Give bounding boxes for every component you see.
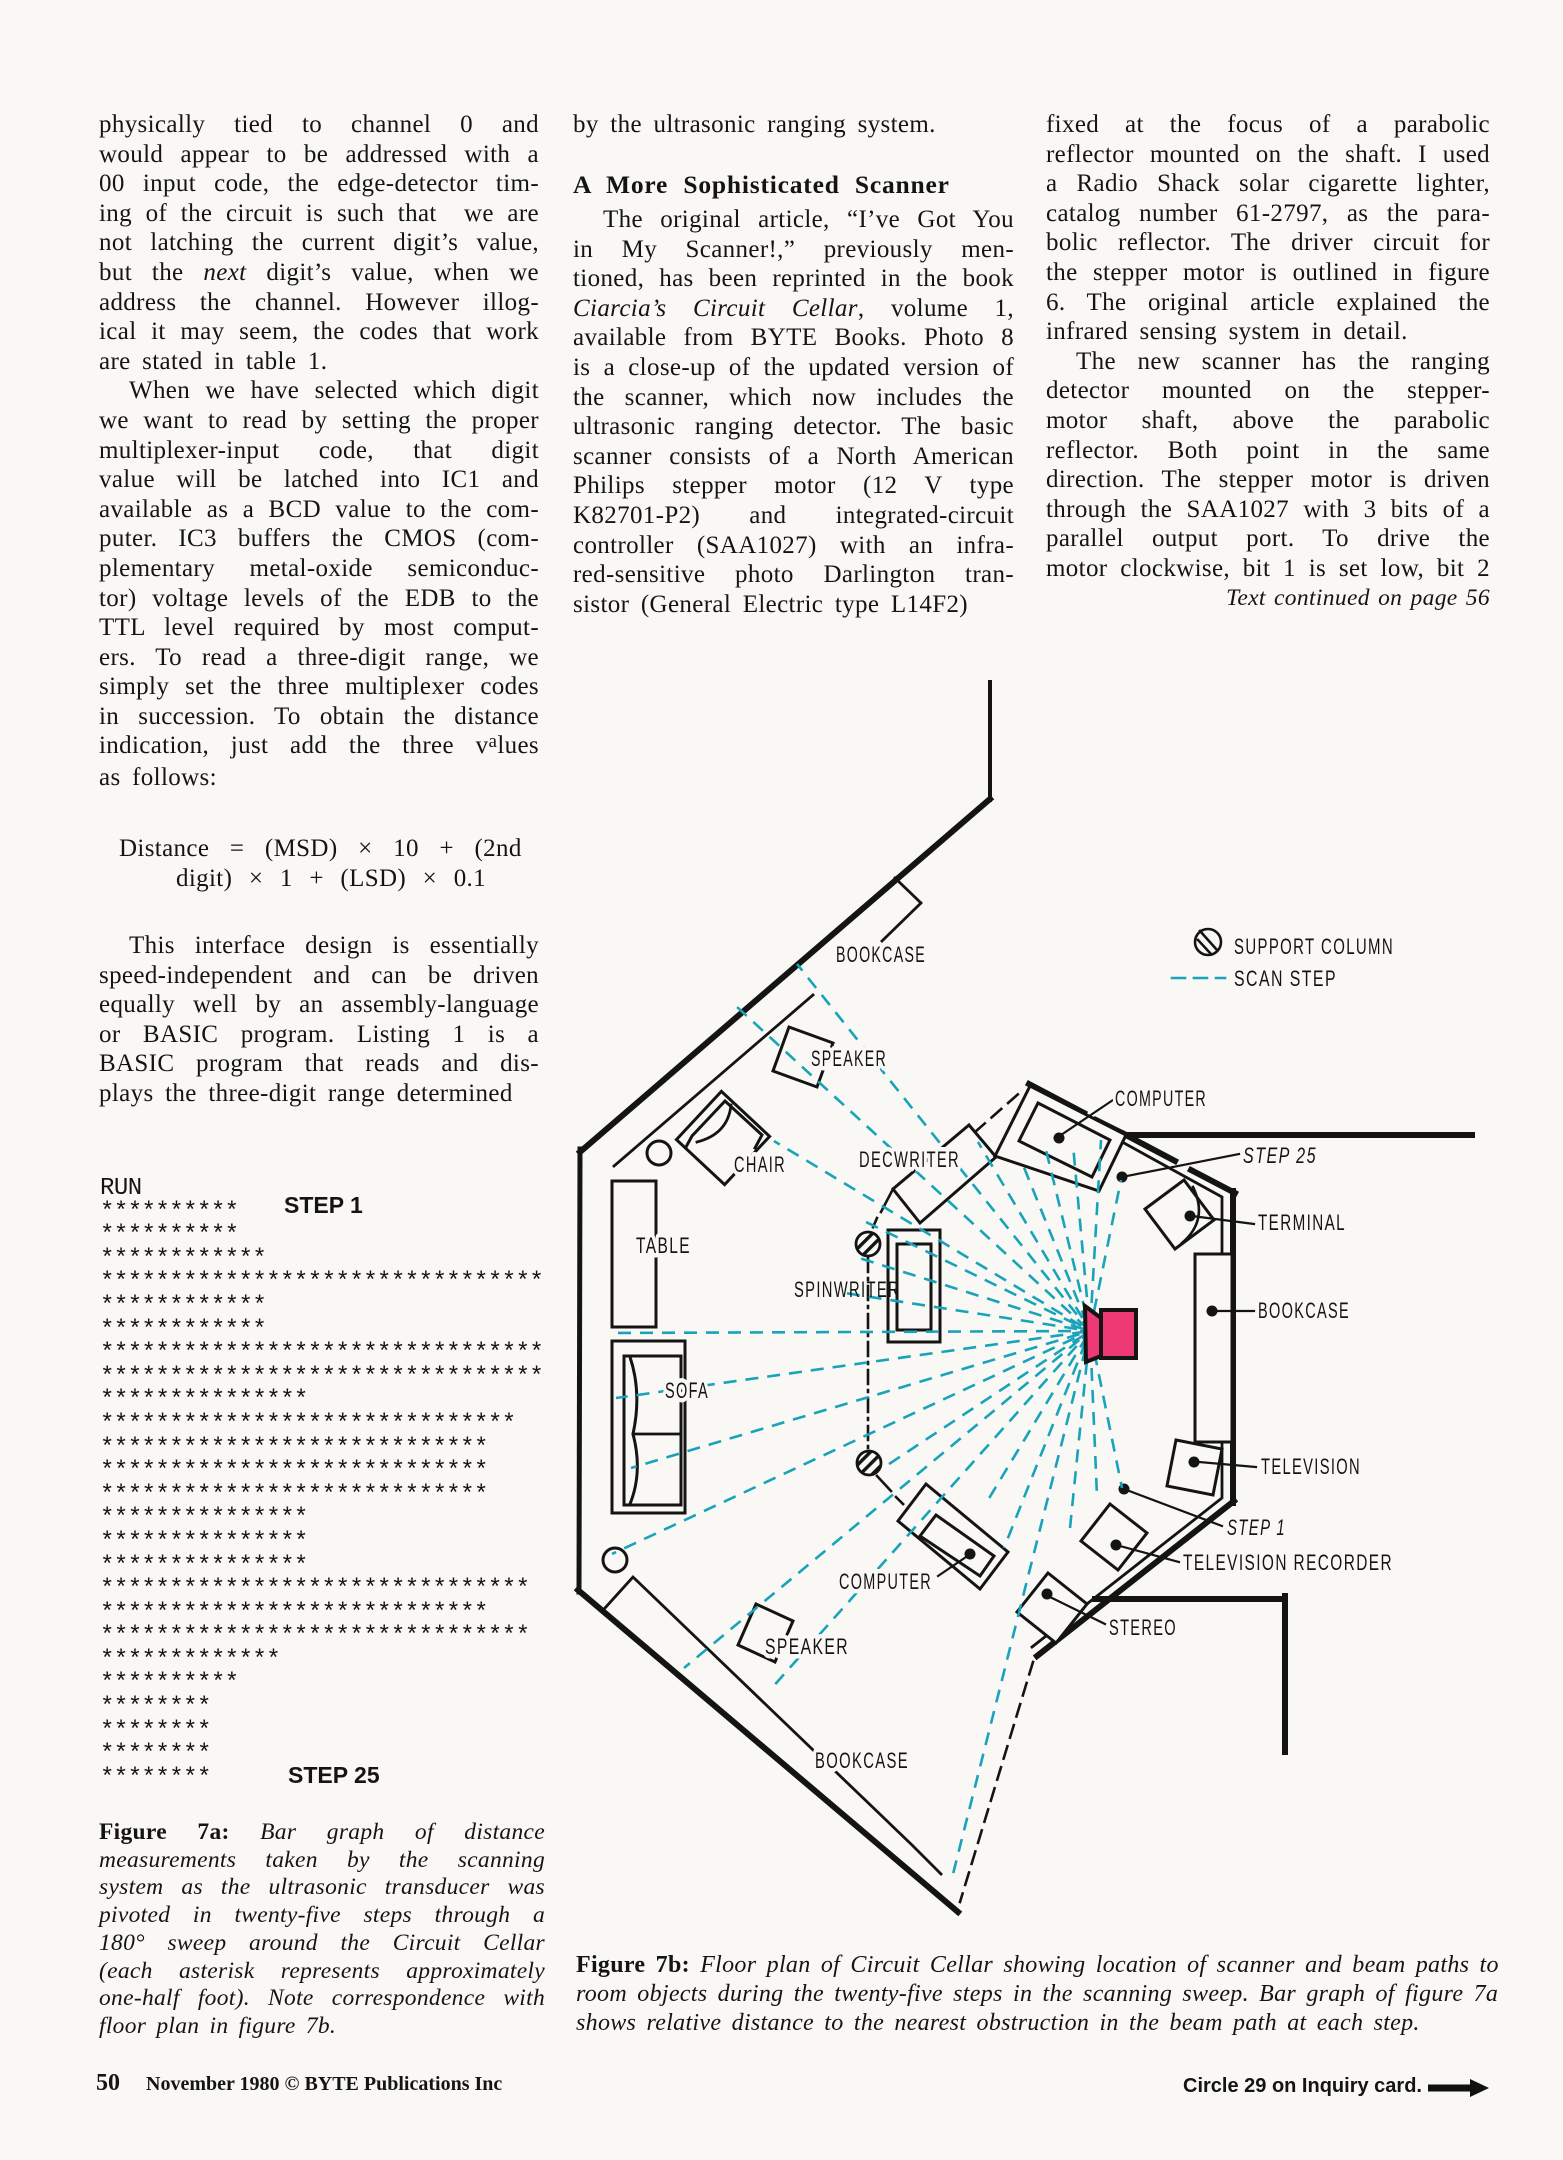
svg-text:BOOKCASE: BOOKCASE	[836, 942, 926, 967]
svg-text:TELEVISION RECORDER: TELEVISION RECORDER	[1183, 1550, 1393, 1575]
svg-text:STEP 25: STEP 25	[1243, 1143, 1317, 1168]
svg-text:TABLE: TABLE	[636, 1233, 691, 1258]
svg-text:SPEAKER: SPEAKER	[765, 1634, 849, 1659]
svg-text:SCAN STEP: SCAN STEP	[1234, 966, 1337, 991]
svg-text:BOOKCASE: BOOKCASE	[1258, 1298, 1350, 1323]
svg-text:TELEVISION: TELEVISION	[1261, 1454, 1361, 1479]
svg-text:DECWRITER: DECWRITER	[859, 1147, 960, 1172]
svg-text:CHAIR: CHAIR	[734, 1152, 786, 1177]
svg-text:SUPPORT COLUMN: SUPPORT COLUMN	[1234, 934, 1394, 959]
svg-text:SPEAKER: SPEAKER	[811, 1046, 887, 1071]
svg-text:COMPUTER: COMPUTER	[839, 1569, 932, 1594]
svg-text:STEREO: STEREO	[1109, 1615, 1177, 1640]
svg-text:BOOKCASE: BOOKCASE	[815, 1748, 909, 1773]
svg-text:TERMINAL: TERMINAL	[1258, 1210, 1346, 1235]
svg-text:STEP 1: STEP 1	[1227, 1515, 1286, 1540]
svg-text:COMPUTER: COMPUTER	[1115, 1086, 1207, 1111]
svg-text:SPINWRITER: SPINWRITER	[794, 1277, 900, 1302]
svg-text:SOFA: SOFA	[665, 1378, 709, 1403]
